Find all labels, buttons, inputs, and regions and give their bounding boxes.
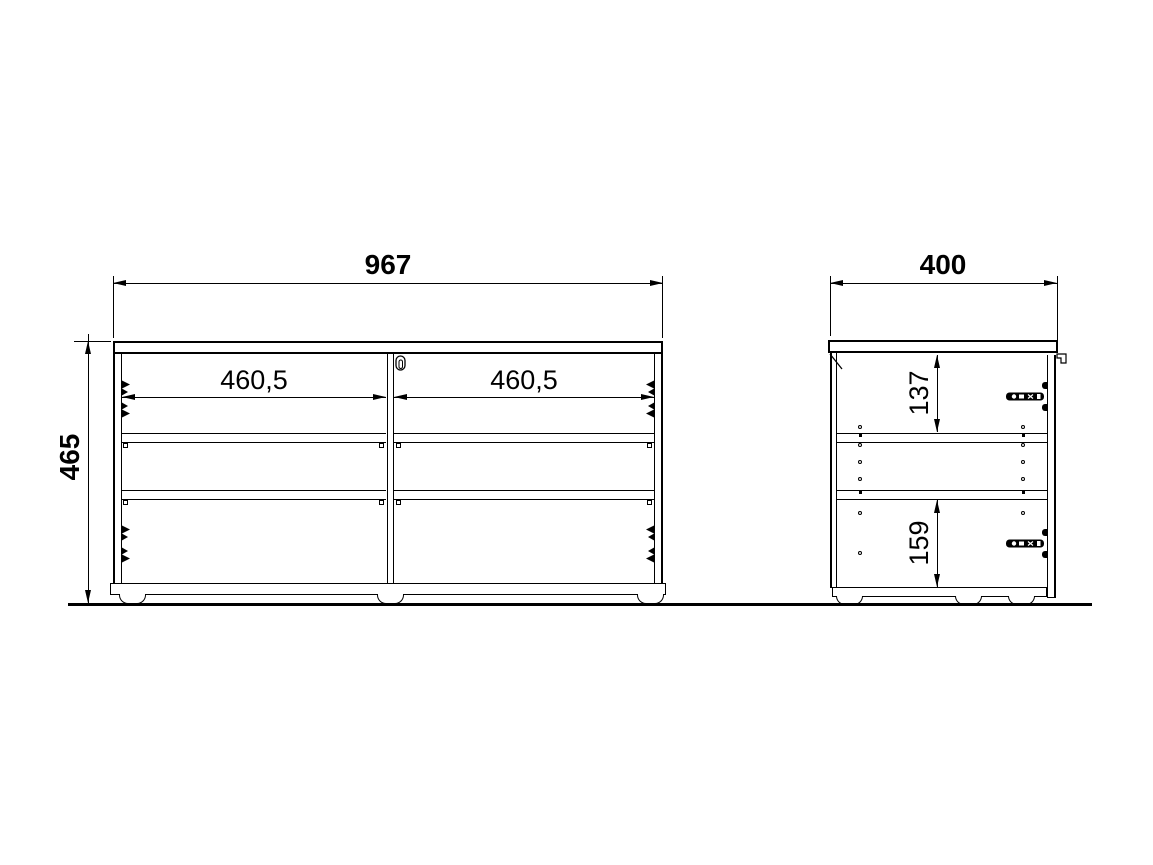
ground-line — [68, 603, 1092, 606]
cabinet-top-panel — [113, 341, 663, 354]
hinge-mount-bump — [1042, 529, 1047, 536]
shelf-edge — [837, 499, 1047, 500]
side-top-panel — [828, 340, 1058, 353]
keyhole-icon — [395, 355, 407, 372]
shelf-pin-hole — [858, 460, 862, 464]
door-top-hook-icon — [1056, 353, 1069, 366]
arrowhead-up-icon — [934, 355, 940, 368]
hinge-icon — [121, 524, 132, 564]
shelf-edge — [394, 499, 654, 500]
shelf-pin-hole — [1021, 443, 1025, 447]
arrowhead-down-icon — [934, 574, 940, 587]
left-side-panel-outer-edge — [113, 352, 115, 584]
top-clearance-label: 137 — [904, 333, 934, 453]
shelf-edge — [837, 442, 1047, 443]
door-hinge-icon — [1005, 391, 1046, 402]
arrowhead-right-icon — [373, 394, 386, 400]
shelf-edge — [122, 490, 386, 491]
extension-line — [74, 341, 111, 342]
dimension-line — [122, 397, 386, 398]
shelf-pin-hole — [858, 477, 862, 481]
arrowhead-up-icon — [934, 500, 940, 513]
hinge-mount-bump — [1042, 382, 1047, 389]
shelf-edge — [394, 442, 654, 443]
arrowhead-left-icon — [394, 394, 407, 400]
dimension-line — [830, 283, 1057, 284]
hinge-mount-bump — [1042, 404, 1047, 411]
shelf-peg — [647, 443, 652, 448]
shelf-pin — [1022, 434, 1025, 437]
arrowhead-down-icon — [85, 590, 91, 603]
shelf-pin-hole — [858, 551, 862, 555]
arrowhead-right-icon — [1044, 280, 1057, 286]
shelf-peg — [396, 500, 401, 505]
shelf-peg — [123, 443, 128, 448]
hinge-icon — [644, 524, 655, 564]
shelf-pin-hole — [1021, 477, 1025, 481]
shelf-edge — [122, 433, 386, 434]
shelf-pin-hole — [1021, 511, 1025, 515]
dimension-line — [113, 283, 663, 284]
front-width-label: 967 — [338, 250, 438, 280]
arrowhead-left-icon — [830, 280, 843, 286]
dimension-line — [394, 397, 654, 398]
arrowhead-right-icon — [641, 394, 654, 400]
shelf-edge — [837, 433, 1047, 434]
shelf-peg — [379, 500, 384, 505]
center-divider-right-edge — [393, 353, 394, 583]
corner-diagonal-mark — [829, 352, 845, 372]
dimension-line — [88, 334, 89, 604]
right-side-panel-outer-edge — [661, 352, 663, 584]
technical-drawing: 967 465 — [0, 0, 1153, 865]
shelf-edge — [394, 433, 654, 434]
right-opening-label: 460,5 — [474, 365, 574, 395]
side-depth-label: 400 — [893, 250, 993, 280]
hinge-mount-bump — [1042, 551, 1047, 558]
left-opening-label: 460,5 — [204, 365, 304, 395]
arrowhead-left-icon — [122, 394, 135, 400]
shelf-edge — [837, 490, 1047, 491]
shelf-pin-hole — [1021, 425, 1025, 429]
back-panel-outer-edge — [830, 352, 832, 588]
bottom-clearance-label: 159 — [904, 483, 934, 603]
front-height-label: 465 — [55, 397, 85, 517]
arrowhead-down-icon — [934, 419, 940, 432]
center-divider-left-edge — [387, 353, 388, 583]
shelf-peg — [123, 500, 128, 505]
arrowhead-left-icon — [113, 280, 126, 286]
door-hinge-icon — [1005, 538, 1046, 549]
shelf-edge — [394, 490, 654, 491]
shelf-pin-hole — [1021, 460, 1025, 464]
shelf-edge — [122, 442, 386, 443]
arrowhead-right-icon — [650, 280, 663, 286]
shelf-peg — [379, 443, 384, 448]
shelf-pin-hole — [858, 425, 862, 429]
shelf-pin-hole — [858, 443, 862, 447]
door-inner-edge — [1047, 355, 1048, 598]
back-panel-inner-edge — [836, 353, 837, 587]
shelf-pin — [859, 491, 862, 494]
door-bottom-edge — [1047, 597, 1056, 598]
arrowhead-up-icon — [85, 341, 91, 354]
shelf-peg — [396, 443, 401, 448]
door-outer-edge — [1054, 355, 1056, 598]
shelf-edge — [122, 499, 386, 500]
shelf-peg — [647, 500, 652, 505]
shelf-pin — [859, 434, 862, 437]
shelf-pin — [1022, 491, 1025, 494]
shelf-pin-hole — [858, 511, 862, 515]
